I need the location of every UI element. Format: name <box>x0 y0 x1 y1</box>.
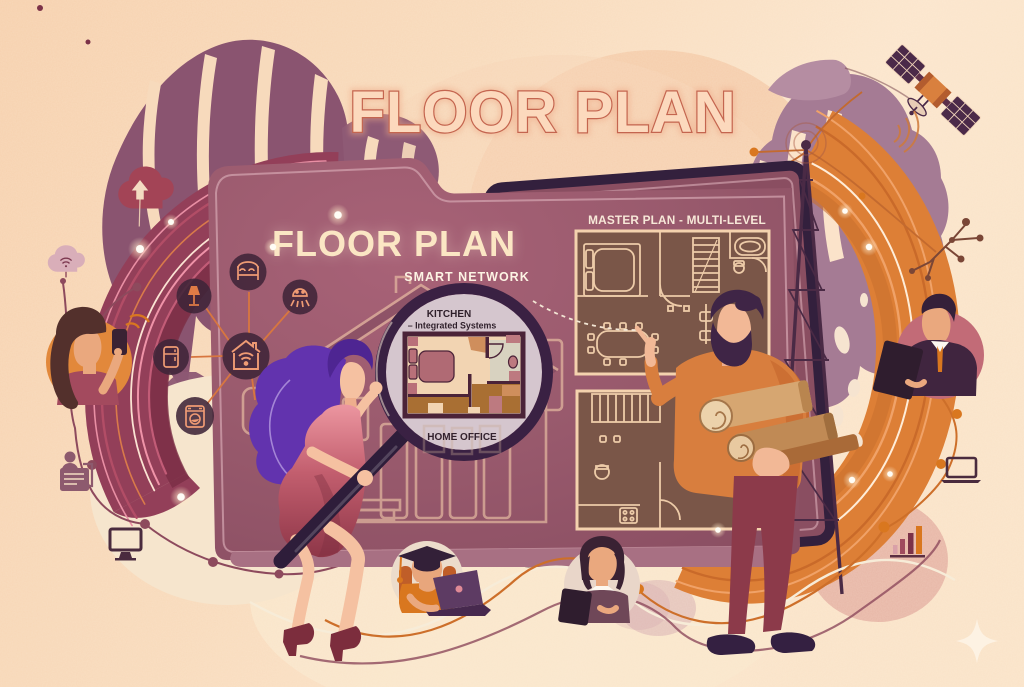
svg-text:KITCHEN: KITCHEN <box>427 309 471 320</box>
svg-text:FLOOR PLAN: FLOOR PLAN <box>350 80 737 145</box>
svg-text:HOME OFFICE: HOME OFFICE <box>427 432 497 443</box>
svg-text:MASTER PLAN - MULTI-LEVEL: MASTER PLAN - MULTI-LEVEL <box>588 213 766 227</box>
svg-text:FLOOR PLAN: FLOOR PLAN <box>272 223 516 264</box>
svg-text:SMART NETWORK: SMART NETWORK <box>404 270 530 284</box>
svg-text:– Integrated Systems: – Integrated Systems <box>408 321 497 331</box>
